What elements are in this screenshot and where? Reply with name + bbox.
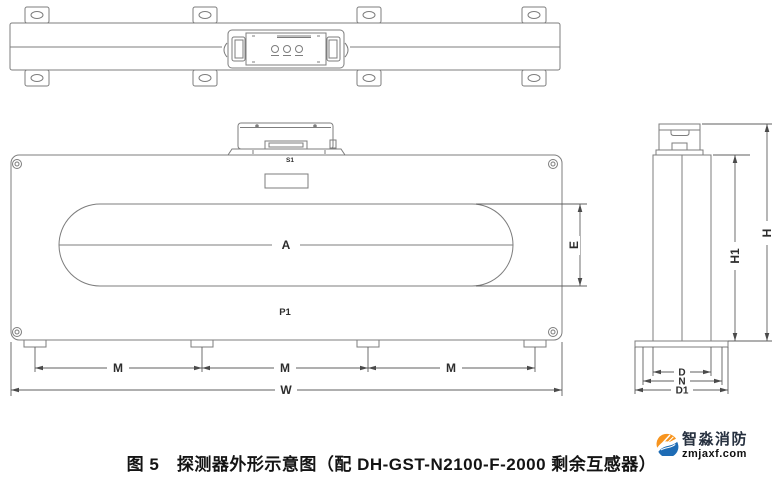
dim-label-d1: D1 xyxy=(676,386,689,397)
detector-outline-drawing: S1 A P1 E M M M W H H1 D N D1 xyxy=(0,0,783,430)
terminal-box-top xyxy=(228,30,344,68)
dim-label-h: H xyxy=(760,229,774,238)
terminal-box-side xyxy=(659,124,700,150)
brand-name: 智淼消防 xyxy=(682,432,748,448)
mounting-tab xyxy=(25,70,546,86)
base-flange xyxy=(635,341,728,347)
dim-label-w: W xyxy=(280,383,292,397)
bottom-tab xyxy=(24,340,546,347)
dim-label-e: E xyxy=(567,241,581,249)
slot-label-a: A xyxy=(282,238,291,252)
mounting-tab xyxy=(25,7,546,23)
page: S1 A P1 E M M M W H H1 D N D1 xyxy=(0,0,783,489)
neck xyxy=(656,150,703,155)
terminal-box-front xyxy=(228,123,345,155)
dim-label-h1: H1 xyxy=(728,248,742,264)
board-label-p1: P1 xyxy=(279,307,291,318)
brand-logo: 智淼消防 zmjaxf.com xyxy=(655,432,748,460)
dim-label-m1: M xyxy=(113,361,123,375)
terminal-label: S1 xyxy=(286,157,294,164)
brand-logo-icon xyxy=(655,432,679,456)
dim-label-m2: M xyxy=(280,361,290,375)
top-view xyxy=(10,7,560,86)
brand-website: zmjaxf.com xyxy=(682,449,748,461)
side-view xyxy=(635,124,728,347)
brand-logo-text: 智淼消防 zmjaxf.com xyxy=(682,432,748,460)
dim-label-m3: M xyxy=(446,361,456,375)
